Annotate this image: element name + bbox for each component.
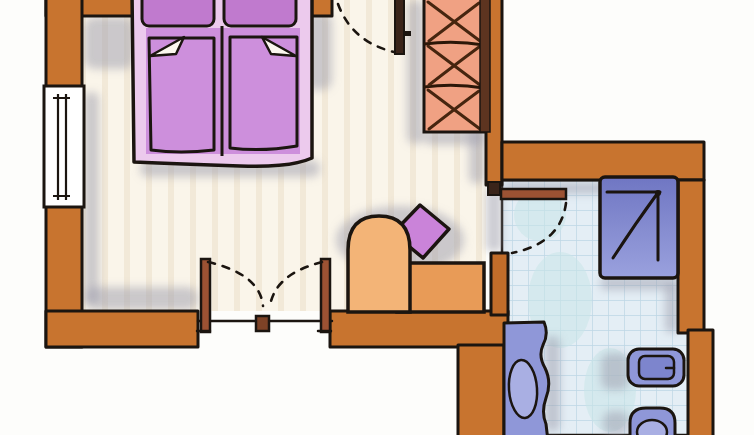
toilet xyxy=(630,408,675,435)
bottom-wall-right xyxy=(330,311,508,347)
shower-drain-dot xyxy=(655,190,661,196)
balcony-door-leaf-right xyxy=(321,259,330,332)
bidet xyxy=(628,349,684,386)
chair-back xyxy=(348,216,410,312)
window xyxy=(44,86,84,207)
shadow xyxy=(84,17,134,69)
pillow-left xyxy=(142,0,214,26)
shadow xyxy=(407,0,424,144)
shower xyxy=(600,177,678,278)
sink xyxy=(504,322,549,435)
shadow xyxy=(603,411,629,435)
wardrobe-side-panel xyxy=(480,0,490,132)
shadow xyxy=(84,92,99,304)
shadow xyxy=(601,353,629,390)
bathroom-partition-stub xyxy=(491,253,508,315)
bathroom-door-hinge xyxy=(488,182,500,195)
bathroom-right-wall-upper xyxy=(678,180,704,333)
bathroom-top-wall xyxy=(502,142,704,180)
entry-door-handle xyxy=(404,31,411,36)
balcony-door-leaf-left xyxy=(201,259,210,332)
left-wall-upper xyxy=(46,0,82,90)
toilet-bowl xyxy=(637,420,667,435)
bathroom-door-leaf xyxy=(501,189,566,199)
shadow xyxy=(84,287,198,310)
window-frame xyxy=(44,86,84,207)
floor-plan xyxy=(0,0,754,435)
double-bed xyxy=(132,0,312,166)
floor-plan-drawing xyxy=(0,0,754,435)
center-stop-block xyxy=(256,316,269,331)
shadow xyxy=(665,283,678,333)
wardrobe xyxy=(424,0,490,132)
bathroom-right-wall-lower xyxy=(688,330,713,435)
corner-wall xyxy=(458,345,504,435)
bottom-wall-left xyxy=(46,311,198,347)
pillow-right xyxy=(224,0,296,26)
entry-door-leaf xyxy=(395,0,404,54)
